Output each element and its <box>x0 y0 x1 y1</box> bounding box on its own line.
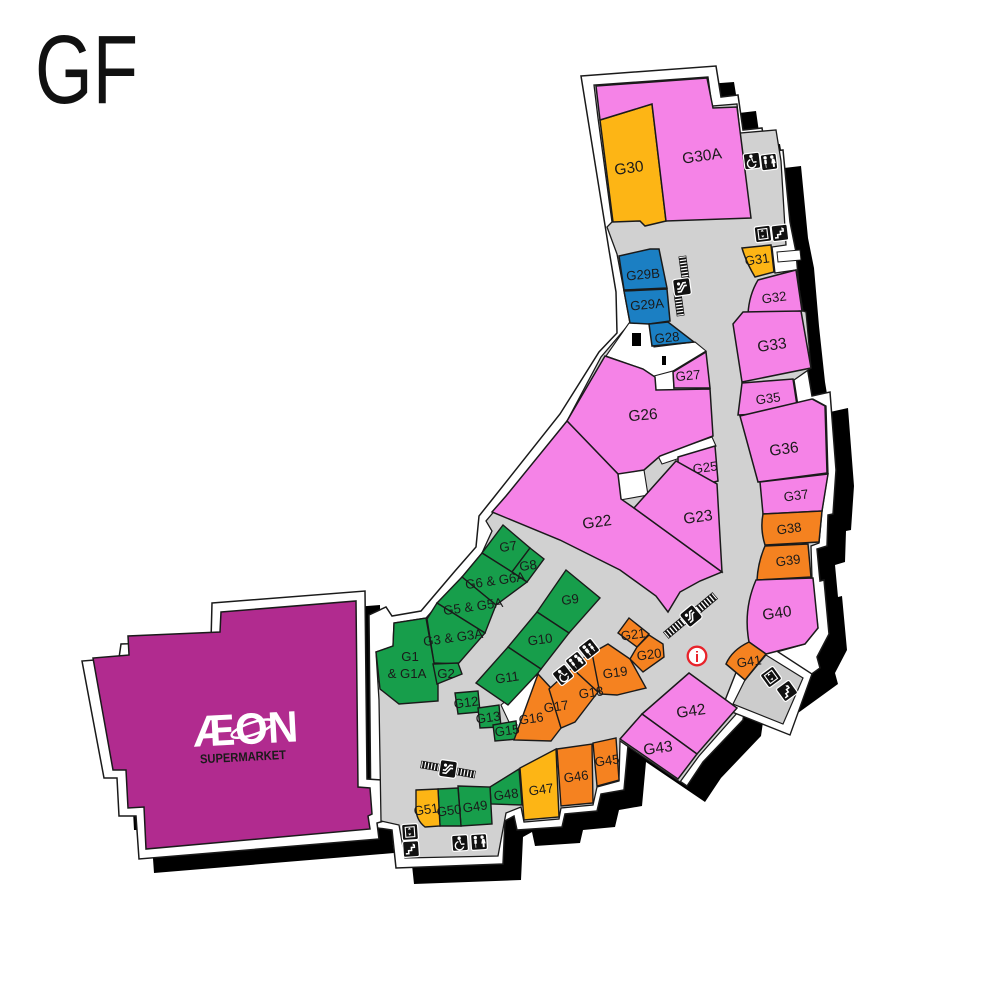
svg-text:G27: G27 <box>675 367 701 384</box>
svg-text:& G1A: & G1A <box>388 666 427 681</box>
svg-text:G7: G7 <box>498 538 518 555</box>
svg-text:G29A: G29A <box>630 296 665 314</box>
svg-text:G9: G9 <box>560 591 580 608</box>
svg-text:G26: G26 <box>628 406 659 425</box>
svg-text:GF: GF <box>35 15 138 124</box>
svg-text:G1: G1 <box>401 649 419 664</box>
svg-text:i: i <box>695 650 699 666</box>
svg-text:G28: G28 <box>654 329 680 346</box>
svg-text:G2: G2 <box>437 666 455 681</box>
svg-text:G29B: G29B <box>626 266 661 284</box>
